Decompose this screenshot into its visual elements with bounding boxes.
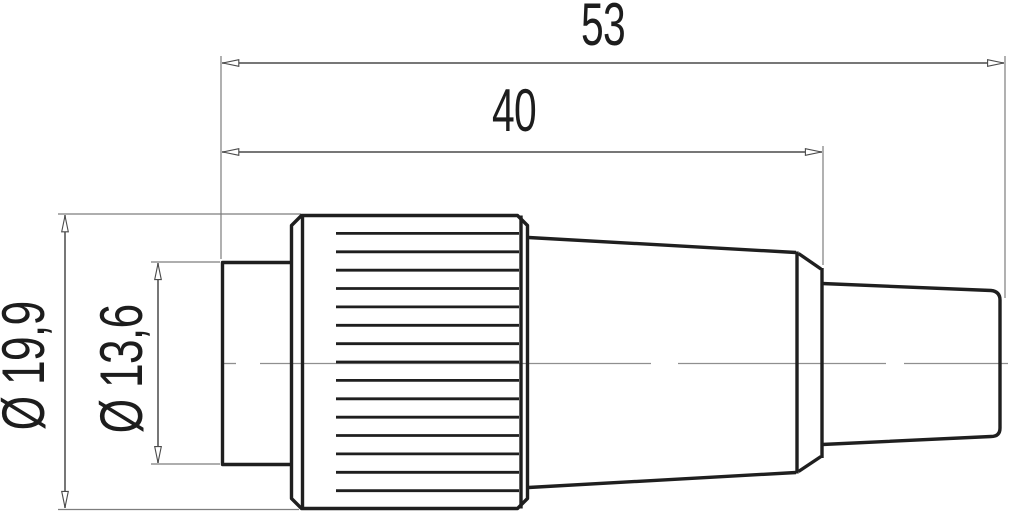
dimension-label-overall-length: 53 (581, 0, 625, 55)
body-chamfer-bottom (799, 457, 822, 472)
arrow-right-icon (988, 60, 1004, 67)
knurl-ribs (336, 233, 519, 490)
body-taper-top (529, 238, 797, 253)
body-taper-bottom (529, 473, 797, 488)
arrow-down-icon (155, 447, 162, 463)
arrow-up-icon (155, 264, 162, 280)
body-chamfer-top (799, 254, 822, 270)
arrow-right-icon (805, 149, 821, 156)
technical-drawing-canvas: 53 40 Ø 19,9 Ø 13,6 (0, 0, 1010, 514)
dimension-label-coupling-diameter: Ø 19,9 (0, 302, 54, 431)
dimension-label-body-length: 40 (492, 81, 536, 141)
arrow-left-icon (223, 60, 239, 67)
arrow-left-icon (223, 149, 239, 156)
dimension-label-front-diameter: Ø 13,6 (92, 305, 152, 434)
arrow-down-icon (62, 491, 69, 507)
arrow-up-icon (62, 216, 69, 232)
